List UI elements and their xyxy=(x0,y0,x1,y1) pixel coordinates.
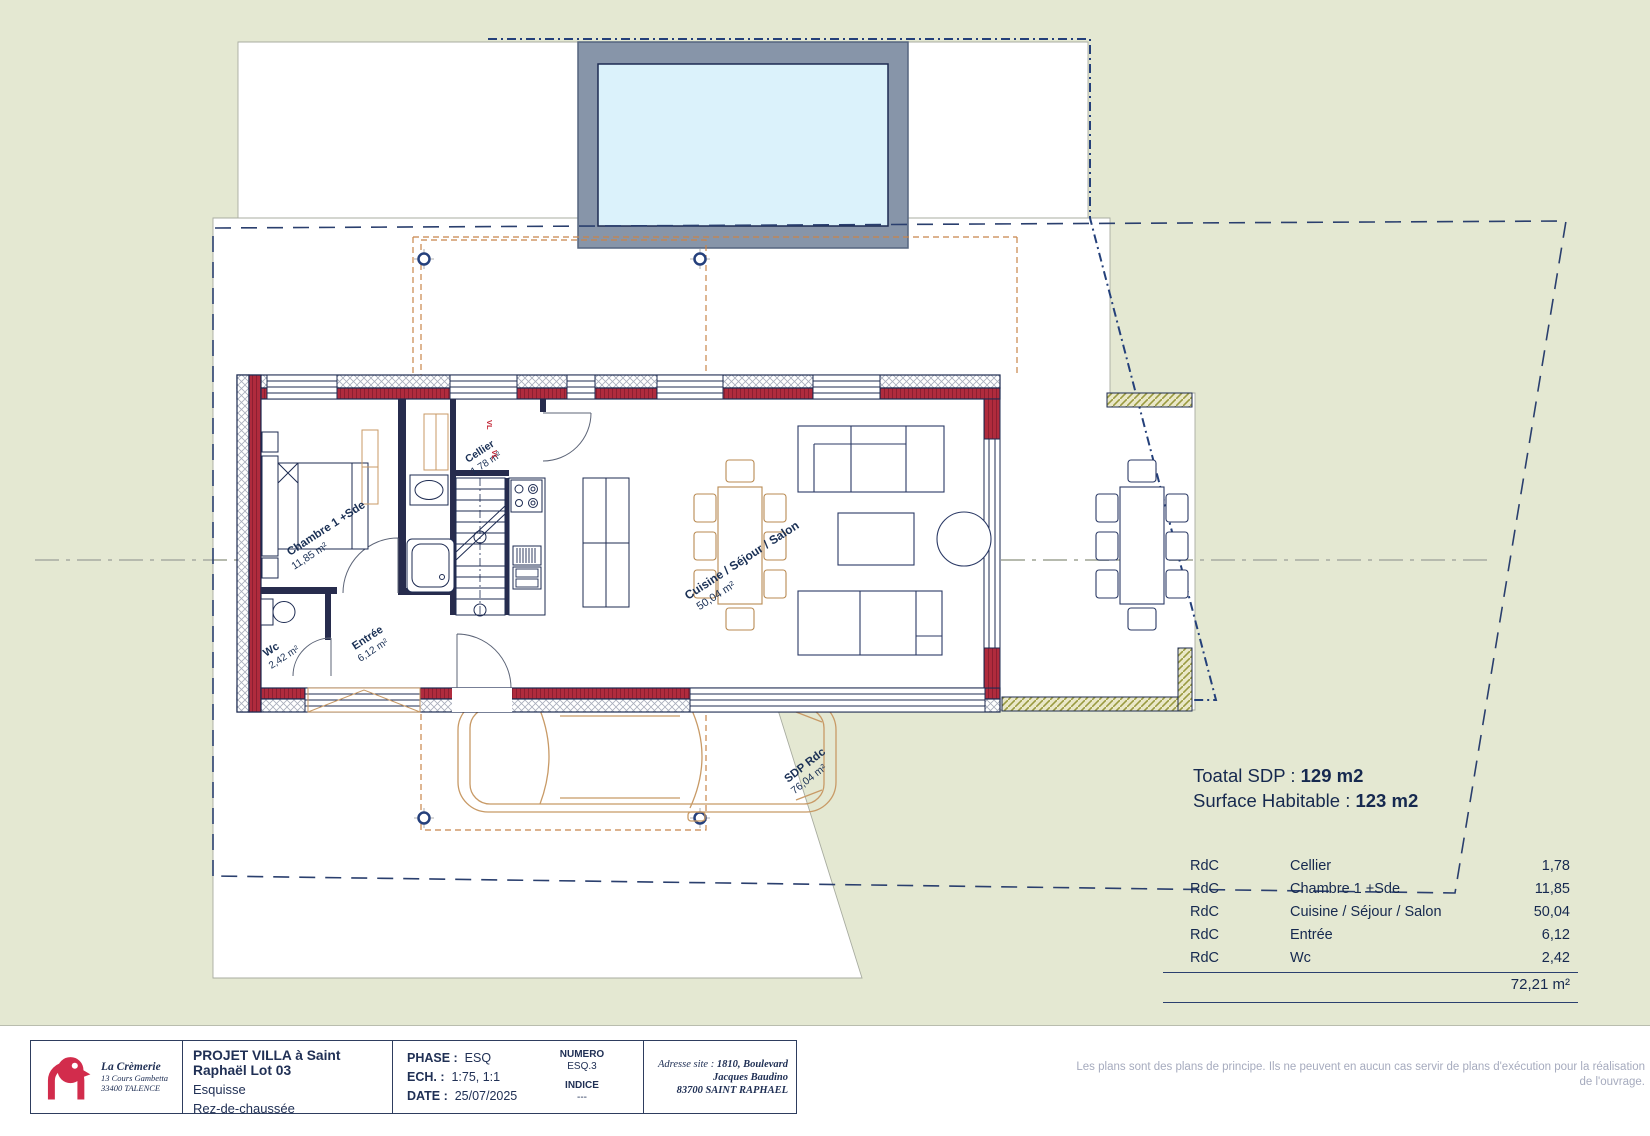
house xyxy=(237,375,1000,712)
title-block: La Crèmerie 13 Cours Gambetta 33400 TALE… xyxy=(30,1040,797,1114)
table-row: RdC Entrée 6,12 xyxy=(1190,927,1570,947)
phase-line: PHASE : ESQ xyxy=(407,1049,521,1068)
row-area: 6,12 xyxy=(1480,927,1570,947)
scale-label: ECH. : xyxy=(407,1070,445,1084)
kitchen-island xyxy=(583,478,629,607)
habitable-value: 123 m2 xyxy=(1355,790,1418,811)
scale-value: 1:75, 1:1 xyxy=(451,1070,500,1084)
toilet-icon xyxy=(261,599,295,625)
row-level: RdC xyxy=(1190,927,1290,947)
stove-icon xyxy=(511,480,542,512)
total-sdp-label: Toatal SDP : xyxy=(1193,765,1301,786)
company-address: 13 Cours Gambetta xyxy=(101,1073,168,1084)
phase-name: Esquisse xyxy=(193,1082,392,1097)
total-sdp-value: 129 m2 xyxy=(1301,765,1364,786)
row-level: RdC xyxy=(1190,950,1290,970)
table-row: RdC Wc 2,42 xyxy=(1190,950,1570,970)
row-level: RdC xyxy=(1190,904,1290,924)
stairs xyxy=(456,478,505,616)
numero-label: NUMERO xyxy=(521,1049,643,1061)
site-city: 83700 SAINT RAPHAEL xyxy=(644,1084,788,1097)
project-title: PROJET VILLA à Saint Raphaël Lot 03 xyxy=(193,1048,392,1078)
table-rule xyxy=(1163,1002,1578,1003)
habitable-label: Surface Habitable : xyxy=(1193,790,1355,811)
logo-cell: La Crèmerie 13 Cours Gambetta 33400 TALE… xyxy=(31,1041,183,1113)
numero-cell: NUMERO ESQ.3 INDICE --- xyxy=(521,1041,644,1113)
row-room: Cellier xyxy=(1290,858,1480,878)
project-title-cell: PROJET VILLA à Saint Raphaël Lot 03 Esqu… xyxy=(183,1041,393,1113)
row-room: Chambre 1 +Sde xyxy=(1290,881,1480,901)
row-area: 11,85 xyxy=(1480,881,1570,901)
row-room: Cuisine / Séjour / Salon xyxy=(1290,904,1480,924)
swimming-pool xyxy=(578,42,908,248)
row-area: 2,42 xyxy=(1480,950,1570,970)
row-area: 1,78 xyxy=(1480,858,1570,878)
table-total: 72,21 m² xyxy=(1163,976,1570,993)
company-identity: La Crèmerie 13 Cours Gambetta 33400 TALE… xyxy=(101,1061,168,1094)
phase-info-cell: PHASE : ESQ ECH. : 1:75, 1:1 DATE : 25/0… xyxy=(393,1041,521,1113)
date-value: 25/07/2025 xyxy=(455,1089,518,1103)
table-row: RdC Cellier 1,78 xyxy=(1190,858,1570,878)
phase-label: PHASE : xyxy=(407,1051,458,1065)
total-sdp-line: Toatal SDP : 129 m2 xyxy=(1193,763,1418,788)
site-label: Adresse site : xyxy=(658,1059,717,1070)
vl-marker: VL xyxy=(490,450,499,460)
surface-totals: Toatal SDP : 129 m2 Surface Habitable : … xyxy=(1193,763,1418,813)
row-level: RdC xyxy=(1190,881,1290,901)
table-row: RdC Cuisine / Séjour / Salon 50,04 xyxy=(1190,904,1570,924)
row-room: Wc xyxy=(1290,950,1480,970)
disclaimer-text: Les plans sont des plans de principe. Il… xyxy=(1065,1060,1645,1090)
numero-value: ESQ.3 xyxy=(521,1061,643,1073)
indice-label: INDICE xyxy=(521,1080,643,1092)
row-level: RdC xyxy=(1190,858,1290,878)
company-name: La Crèmerie xyxy=(101,1061,168,1073)
kitchen-counter xyxy=(509,478,545,615)
site-address-line: Adresse site : 1810, Boulevard Jacques B… xyxy=(644,1058,788,1084)
vl-marker: VL xyxy=(485,420,494,430)
phase-value: ESQ xyxy=(465,1051,491,1065)
kitchen-sink-icon xyxy=(513,567,541,589)
indice-value: --- xyxy=(521,1092,643,1104)
vent-icon xyxy=(513,546,541,565)
date-line: DATE : 25/07/2025 xyxy=(407,1087,521,1106)
company-logo-icon xyxy=(41,1047,93,1107)
scale-line: ECH. : 1:75, 1:1 xyxy=(407,1068,521,1087)
site-address-cell: Adresse site : 1810, Boulevard Jacques B… xyxy=(644,1041,796,1113)
table-row: RdC Chambre 1 +Sde 11,85 xyxy=(1190,881,1570,901)
level-name: Rez-de-chaussée xyxy=(193,1101,392,1116)
company-address: 33400 TALENCE xyxy=(101,1083,168,1094)
habitable-line: Surface Habitable : 123 m2 xyxy=(1193,788,1418,813)
table-rule xyxy=(1163,972,1578,973)
site-address: 1810, Boulevard Jacques Baudino xyxy=(713,1059,788,1083)
row-room: Entrée xyxy=(1290,927,1480,947)
date-label: DATE : xyxy=(407,1089,448,1103)
row-area: 50,04 xyxy=(1480,904,1570,924)
